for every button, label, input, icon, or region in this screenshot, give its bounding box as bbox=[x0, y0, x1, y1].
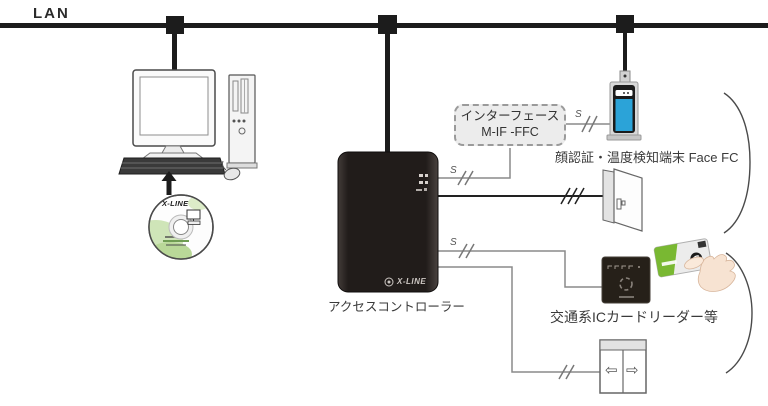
up-arrow-icon bbox=[162, 171, 177, 195]
serial-s-label: S bbox=[450, 165, 457, 176]
cd-brand-label: X-LINE bbox=[162, 199, 188, 208]
drop-line-controller bbox=[385, 34, 390, 160]
wire-interface-to-face bbox=[566, 116, 610, 132]
cd-monitor-glyph-icon bbox=[187, 210, 200, 225]
elevator-right-arrow-icon: ⇨ bbox=[626, 363, 639, 378]
interface-box-line2: M-IF -FFC bbox=[481, 125, 539, 141]
lan-connector-icon bbox=[166, 16, 184, 34]
lan-bus-line bbox=[0, 15, 768, 160]
access-controller-icon bbox=[338, 152, 438, 292]
wire-to-card-reader bbox=[437, 244, 602, 287]
diagram-graphics bbox=[0, 0, 768, 406]
card-reader-label: 交通系ICカードリーダー等 bbox=[550, 307, 718, 327]
controller-label: アクセスコントローラー bbox=[328, 296, 465, 315]
desktop-computer-icon bbox=[119, 70, 257, 182]
lan-connector-icon bbox=[616, 15, 634, 33]
drop-line-pc bbox=[172, 34, 177, 70]
face-terminal-icon bbox=[607, 71, 641, 140]
monitor-icon bbox=[133, 70, 215, 159]
wire-to-door bbox=[437, 188, 604, 204]
pc-tower-icon bbox=[227, 75, 257, 168]
elevator-left-arrow-icon: ⇦ bbox=[605, 363, 618, 378]
lan-connector-icon bbox=[378, 15, 397, 34]
serial-s-label: S bbox=[450, 237, 457, 248]
network-diagram: LAN S S S インターフェース M-IF -FFC X-LINE アクセス… bbox=[0, 0, 768, 406]
drop-line-face-terminal bbox=[623, 33, 627, 71]
face-terminal-label: 顔認証・温度検知端末 Face FC bbox=[555, 147, 738, 166]
door-icon bbox=[603, 169, 642, 231]
serial-s-label: S bbox=[575, 109, 582, 120]
keyboard-icon bbox=[119, 158, 225, 174]
controller-brand-label: X-LINE bbox=[397, 277, 426, 286]
lan-label: LAN bbox=[33, 5, 70, 22]
hand-icon bbox=[683, 255, 735, 292]
card-reader-icon bbox=[602, 257, 650, 303]
interface-box: インターフェース M-IF -FFC bbox=[454, 104, 566, 146]
interface-box-line1: インターフェース bbox=[461, 109, 560, 125]
wire-to-interface bbox=[437, 148, 510, 185]
